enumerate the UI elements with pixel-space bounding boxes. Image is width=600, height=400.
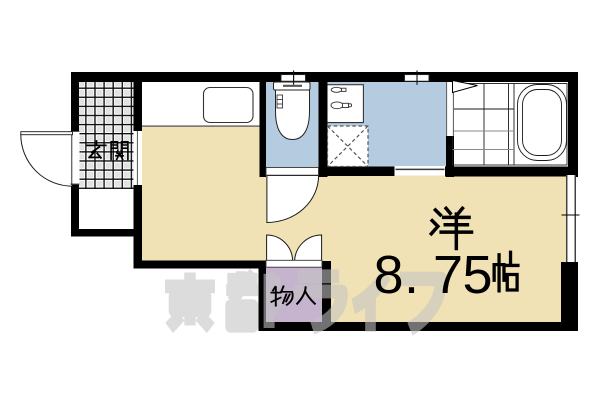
- svg-text:7: 7: [433, 245, 463, 305]
- svg-text:.: .: [404, 245, 419, 305]
- svg-text:5: 5: [463, 245, 493, 305]
- svg-text:8: 8: [374, 245, 404, 305]
